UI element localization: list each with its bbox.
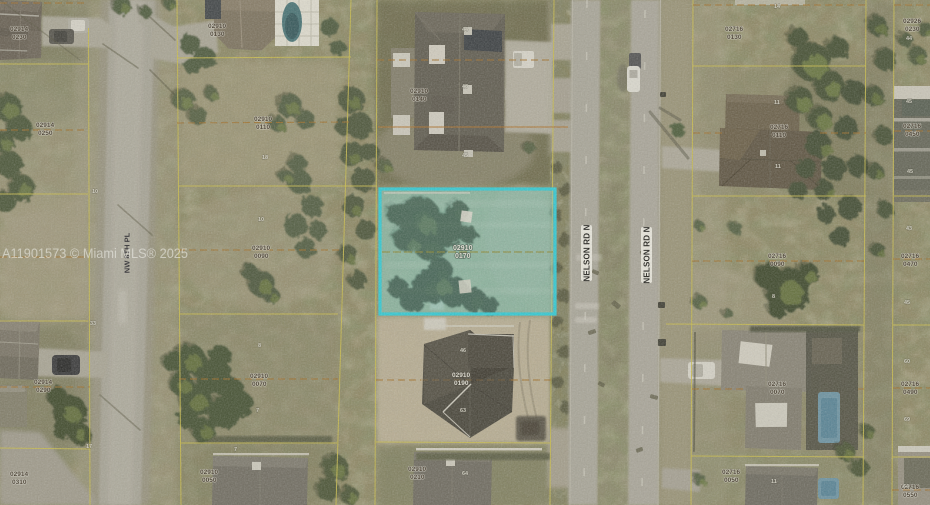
svg-text:A11901573 © Miami MLS® 2025: A11901573 © Miami MLS® 2025: [2, 245, 188, 261]
